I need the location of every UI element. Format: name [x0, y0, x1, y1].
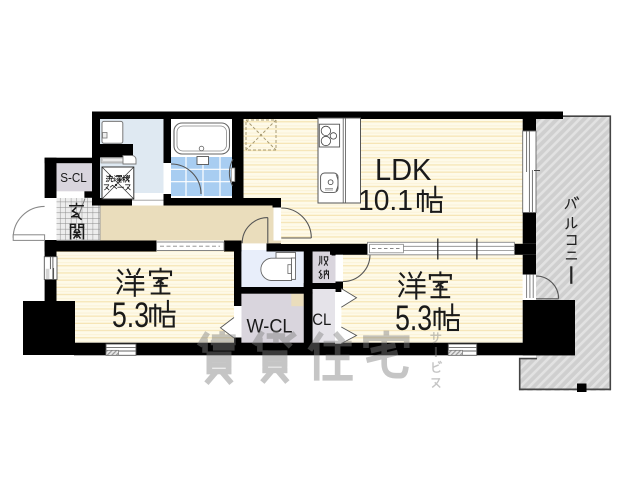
svg-text:5.3: 5.3 [112, 296, 149, 335]
svg-text:CL: CL [312, 311, 331, 329]
svg-text:LDK: LDK [375, 153, 432, 187]
svg-text:10.1: 10.1 [358, 185, 413, 217]
svg-text:S-CL: S-CL [60, 170, 87, 185]
svg-text:5.3: 5.3 [395, 299, 432, 338]
